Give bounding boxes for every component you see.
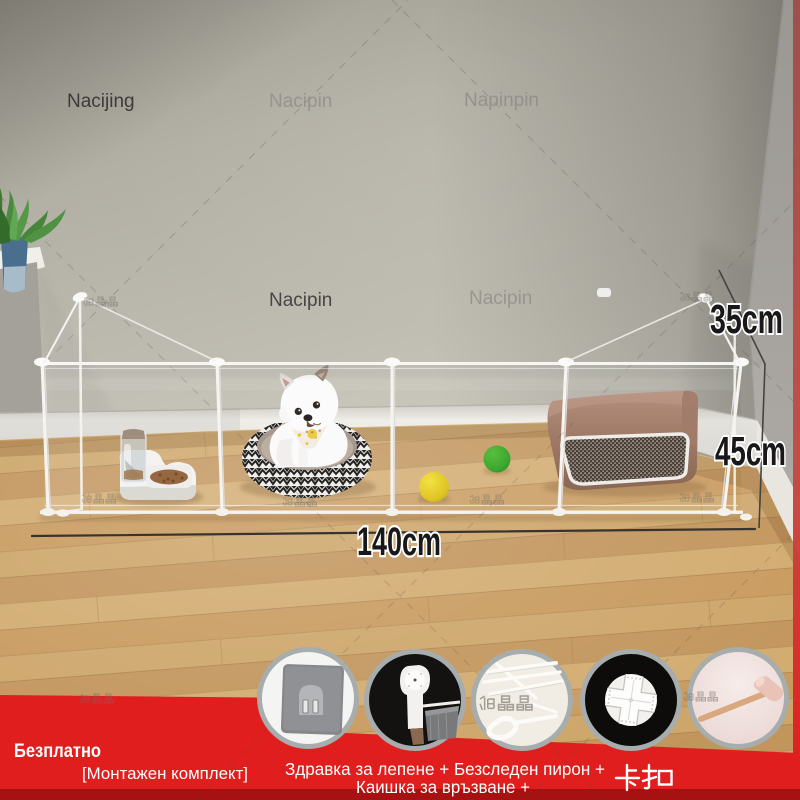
svg-text:Nacipin: Nacipin: [469, 288, 532, 309]
svg-text:45cm: 45cm: [715, 428, 786, 474]
svg-text:Nacijing: Nacijing: [67, 91, 135, 112]
svg-text:140cm: 140cm: [357, 520, 441, 564]
svg-text:[Монтажен комплект]: [Монтажен комплект]: [82, 764, 248, 783]
svg-text:Nacipin: Nacipin: [269, 91, 332, 112]
svg-text:Napinpin: Napinpin: [464, 90, 539, 111]
svg-text:35cm: 35cm: [710, 296, 783, 342]
svg-text:Nacipin: Nacipin: [269, 290, 332, 311]
svg-text:Каишка за връзване +: Каишка за връзване +: [356, 777, 530, 797]
svg-text:Безплатно: Безплатно: [14, 741, 101, 762]
svg-text:Здравка за лепене + Безследен: Здравка за лепене + Безследен пирон +: [285, 759, 605, 779]
